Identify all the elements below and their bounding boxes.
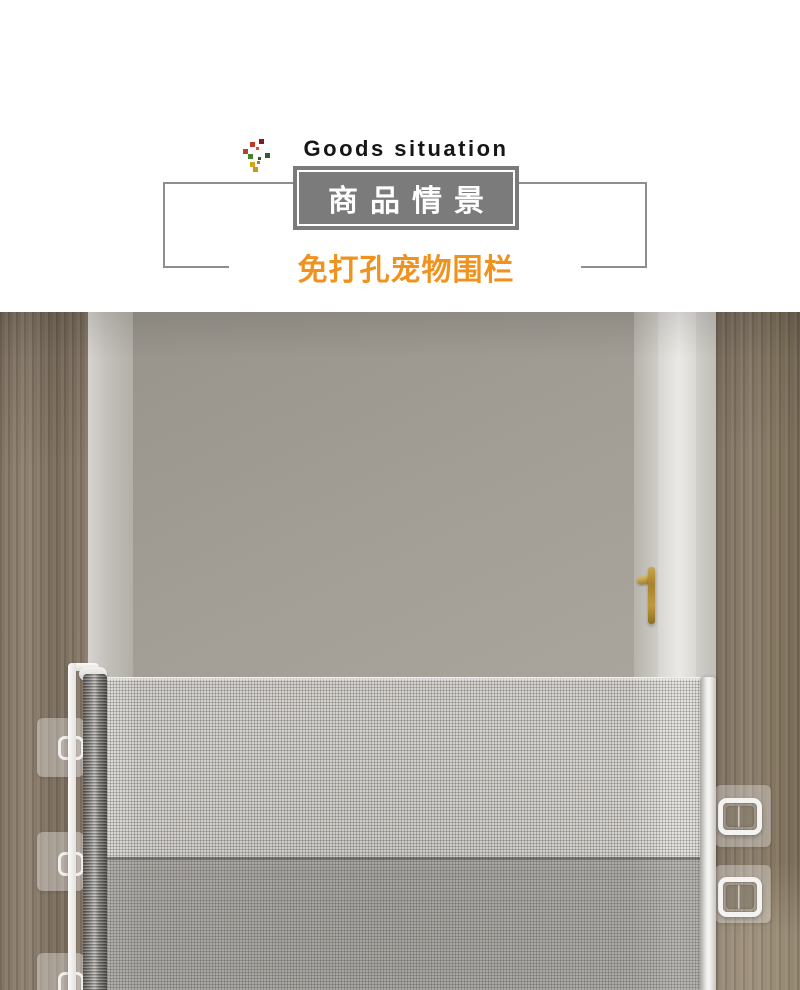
bracket-slot bbox=[726, 885, 754, 909]
product-tagline-cn: 免打孔宠物围栏 bbox=[6, 245, 800, 289]
section-title-box: 商品情景 bbox=[293, 166, 519, 230]
bracket-buckle-icon bbox=[718, 798, 762, 835]
door-handle-plate-icon bbox=[648, 567, 655, 624]
adhesive-bracket-right-2 bbox=[715, 865, 771, 923]
section-product-photo bbox=[0, 312, 800, 990]
product-detail-page: Goods situation 商品情景 免打孔宠物围栏 bbox=[0, 0, 800, 990]
section-header: Goods situation 商品情景 免打孔宠物围栏 bbox=[0, 0, 800, 312]
pet-gate-rail-right bbox=[700, 677, 716, 990]
header-subtitle-en: Goods situation bbox=[6, 136, 800, 162]
adhesive-bracket-left-1 bbox=[37, 718, 84, 777]
adhesive-bracket-left-2 bbox=[37, 832, 84, 891]
pet-gate-rail-left bbox=[68, 663, 76, 990]
adhesive-bracket-left-3 bbox=[37, 953, 84, 990]
adhesive-bracket-right-1 bbox=[715, 785, 771, 847]
pet-gate-roller-post bbox=[83, 674, 107, 990]
section-title-cn: 商品情景 bbox=[297, 170, 515, 226]
frame-line-top-left bbox=[163, 182, 293, 184]
bracket-slot bbox=[726, 806, 754, 827]
pet-gate-mesh-screen bbox=[106, 677, 701, 990]
frame-line-top-right bbox=[519, 182, 647, 184]
bracket-buckle-icon bbox=[718, 877, 762, 917]
